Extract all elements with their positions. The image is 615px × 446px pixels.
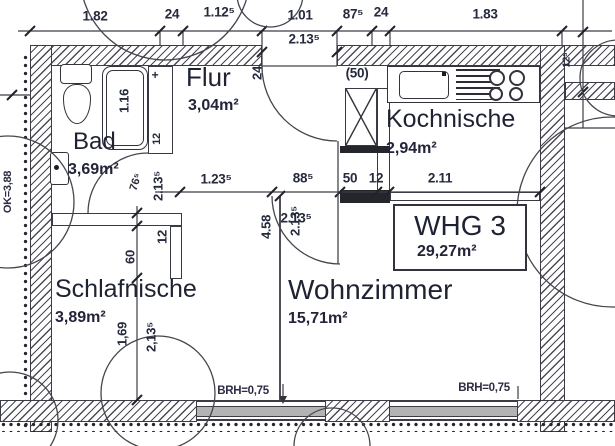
unit-area: 29,27m²: [417, 243, 525, 261]
dim-left-3: 1,69: [115, 322, 130, 346]
dim-top-1: 1.82: [82, 9, 107, 24]
dim-center-height: 2.13⁵: [288, 206, 303, 236]
dim-center-length: 4.58: [259, 215, 274, 239]
room-label-flur: Flur: [186, 62, 231, 93]
unit-label: WHG 3: [395, 210, 525, 242]
left-wall-note: OK=3,88: [2, 171, 14, 213]
unit-label-box: WHG 3 29,27m²: [393, 204, 527, 271]
dim-shaft: (50): [346, 66, 369, 81]
room-label-schlafnische: Schlafnische: [55, 275, 197, 304]
room-label-bad: Bad: [73, 128, 116, 156]
room-area-schlafnische: 3,89m²: [55, 309, 106, 327]
dim-mid-start-height: 2.13⁵: [151, 171, 166, 201]
dim-top-2: 24: [165, 7, 179, 22]
dim-mid-1: 1.23⁵: [200, 172, 231, 187]
dim-top-4: 1.01: [287, 8, 312, 23]
room-area-kochnische: 2,94m²: [386, 140, 437, 158]
duct-shaft-cross-icon: [346, 89, 376, 145]
dim-mid-4: 12: [369, 171, 383, 186]
dim-right-small: 12⁵: [562, 53, 573, 68]
room-label-kochnische: Kochnische: [386, 105, 515, 134]
dim-mid-3: 50: [343, 171, 357, 186]
dim-mid-5: 2.11: [428, 171, 452, 186]
dim-bathtub: 1.16: [117, 89, 132, 113]
room-area-bad: 3,69m²: [68, 161, 119, 179]
dim-top-5: 87⁵: [343, 7, 363, 22]
dim-bad-door-wall: 12: [151, 133, 163, 145]
dim-left-1: 12: [155, 230, 170, 244]
room-area-wohnzimmer: 15,71m²: [288, 310, 348, 328]
dim-entrance-height: 2.13⁵: [288, 32, 319, 47]
dim-wall-thickness: 24: [250, 66, 265, 80]
dim-top-3: 1.12⁵: [203, 5, 234, 20]
dim-mid-2: 88⁵: [293, 171, 313, 186]
dimension-lines: [0, 0, 615, 401]
sill-note-right: BRH=0,75: [458, 382, 510, 394]
faucet-cross-icon: +: [152, 68, 159, 82]
dim-top-7: 1.83: [472, 7, 497, 22]
dim-left-2: 60: [123, 250, 138, 264]
room-label-wohnzimmer: Wohnzimmer: [288, 274, 452, 306]
dim-left-height: 2,13⁵: [144, 322, 159, 352]
room-area-flur: 3,04m²: [188, 97, 239, 115]
dim-top-6: 24: [374, 5, 388, 20]
sill-note-left: BRH=0,75: [217, 385, 269, 397]
floor-plan: +: [0, 0, 615, 446]
